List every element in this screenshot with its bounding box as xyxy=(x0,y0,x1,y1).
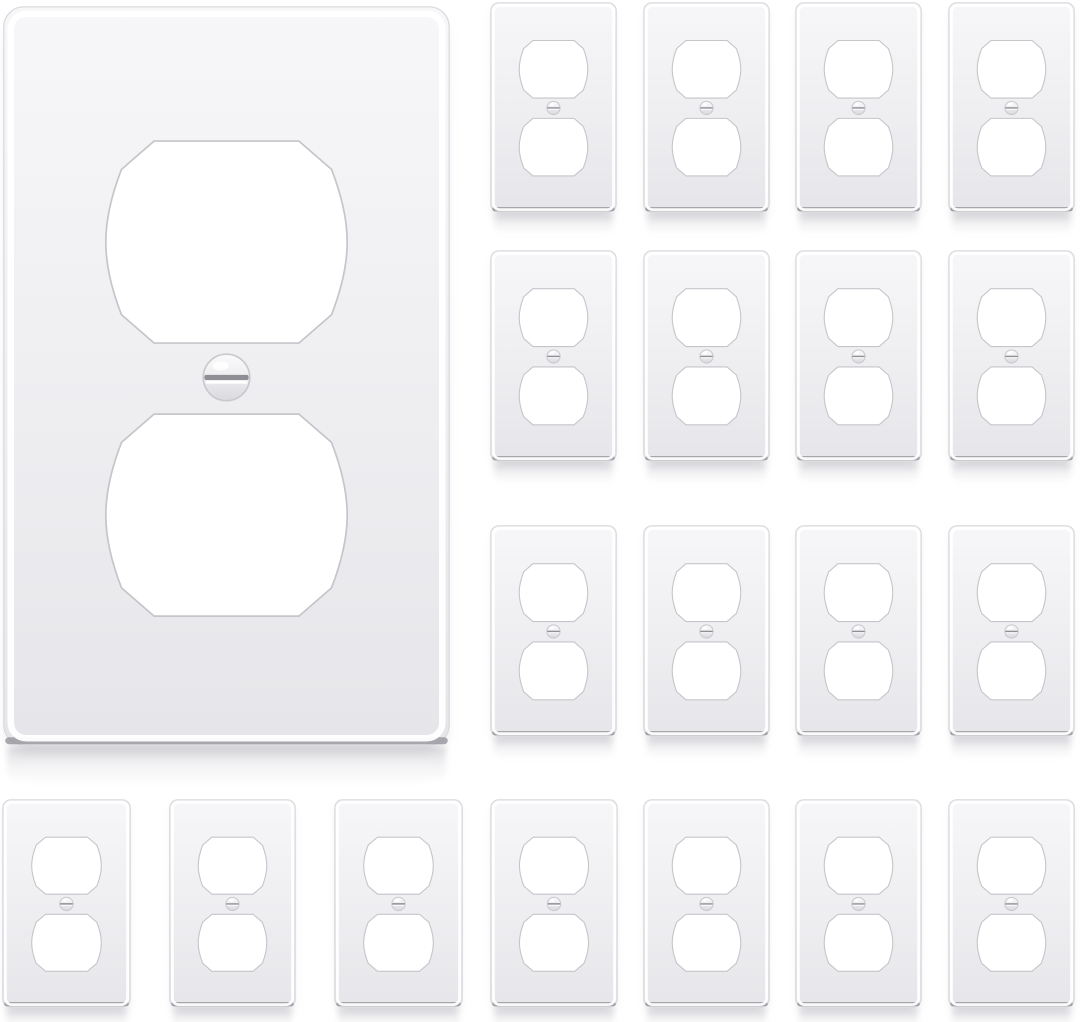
outlet-cutout-bottom xyxy=(106,414,347,616)
screw-highlight xyxy=(1008,627,1012,630)
wall-plate-graphic xyxy=(643,525,770,737)
plate-reflection xyxy=(494,738,613,762)
wall-plate-graphic xyxy=(490,525,617,737)
screw xyxy=(700,897,713,910)
screw xyxy=(852,350,865,363)
wall-plate-graphic xyxy=(643,250,770,462)
plate-reflection xyxy=(952,1009,1071,1022)
outlet-cutout-top xyxy=(824,41,893,99)
screw-slot xyxy=(700,107,713,108)
screw xyxy=(547,897,560,910)
plate-reflection xyxy=(173,1009,292,1022)
wall-plate-graphic xyxy=(948,525,1075,737)
outlet-cutout-top xyxy=(519,564,588,622)
screw-slot xyxy=(204,375,248,380)
screw-slot xyxy=(852,903,865,904)
screw-slot xyxy=(60,903,73,904)
plate-reflection xyxy=(494,1009,614,1022)
screw xyxy=(1005,101,1018,114)
outlet-cutout-top xyxy=(824,837,893,894)
outlet-cutout-bottom xyxy=(672,367,741,425)
wall-plate-small xyxy=(795,2,922,213)
outlet-cutout-bottom xyxy=(824,914,893,971)
plate-reflection xyxy=(799,463,918,487)
plate-reflection xyxy=(647,1009,766,1022)
screw-highlight xyxy=(703,627,707,630)
wall-plate-small xyxy=(795,250,922,462)
wall-plate-small xyxy=(643,799,770,1008)
outlet-cutout-bottom xyxy=(32,914,102,971)
outlet-cutout-top xyxy=(32,837,102,894)
screw-slot xyxy=(392,903,405,904)
outlet-cutout-top xyxy=(977,289,1046,347)
plate-reflection xyxy=(799,1009,918,1022)
wall-plate-small xyxy=(490,250,617,462)
wall-plate-small xyxy=(2,799,131,1008)
screw xyxy=(392,897,405,910)
screw-highlight xyxy=(703,352,707,355)
wall-plate-graphic xyxy=(795,525,922,737)
screw-slot-highlight xyxy=(1006,109,1018,110)
outlet-cutout-bottom xyxy=(977,118,1046,176)
screw-highlight xyxy=(63,899,68,902)
screw-slot xyxy=(700,903,713,904)
outlet-cutout-top xyxy=(672,41,741,99)
plate-reflection xyxy=(647,214,766,238)
plate-reflection xyxy=(338,1009,459,1022)
wall-plate-graphic xyxy=(490,799,618,1008)
screw-slot-highlight xyxy=(548,357,560,358)
wall-plate-graphic xyxy=(948,799,1075,1008)
screw-highlight xyxy=(395,899,400,902)
screw xyxy=(547,101,560,114)
screw xyxy=(700,625,713,638)
screw-highlight xyxy=(855,352,859,355)
outlet-cutout-top xyxy=(106,141,347,343)
screw xyxy=(1005,625,1018,638)
wall-plate-small xyxy=(948,525,1075,737)
screw-slot-highlight xyxy=(701,905,713,906)
screw-slot xyxy=(547,631,560,632)
screw-slot xyxy=(547,107,560,108)
screw-highlight xyxy=(213,361,229,370)
plate-reflection xyxy=(952,463,1071,487)
wall-plate-small xyxy=(948,2,1075,213)
wall-plate-graphic xyxy=(490,2,617,213)
outlet-cutout-bottom xyxy=(672,642,741,700)
product-image-canvas xyxy=(0,0,1080,1022)
wall-plate-graphic xyxy=(334,799,463,1008)
wall-plate-graphic xyxy=(3,6,450,746)
outlet-cutout-bottom xyxy=(519,642,588,700)
screw-highlight xyxy=(229,899,233,902)
screw-slot xyxy=(547,356,560,357)
screw-slot-highlight xyxy=(548,109,560,110)
wall-plate-graphic xyxy=(169,799,296,1008)
outlet-cutout-top xyxy=(198,837,267,894)
outlet-cutout-bottom xyxy=(519,367,588,425)
plate-reflection xyxy=(799,214,918,238)
wall-plate-small xyxy=(643,525,770,737)
wall-plate-small xyxy=(795,799,922,1008)
screw-highlight xyxy=(855,899,859,902)
outlet-cutout-bottom xyxy=(977,642,1046,700)
screw-highlight xyxy=(1008,352,1012,355)
screw-slot-highlight xyxy=(548,905,560,906)
outlet-cutout-bottom xyxy=(824,642,893,700)
screw xyxy=(700,101,713,114)
screw-highlight xyxy=(1008,103,1012,106)
screw-slot-highlight xyxy=(206,381,248,384)
wall-plate-small xyxy=(948,250,1075,462)
outlet-cutout-bottom xyxy=(672,118,741,176)
screw-slot xyxy=(852,107,865,108)
wall-plate-graphic xyxy=(795,799,922,1008)
wall-plate-graphic xyxy=(490,250,617,462)
outlet-cutout-bottom xyxy=(824,367,893,425)
wall-plate-graphic xyxy=(795,2,922,213)
wall-plate-graphic xyxy=(948,250,1075,462)
screw-slot-highlight xyxy=(548,632,560,633)
screw-slot-highlight xyxy=(853,357,865,358)
outlet-cutout-top xyxy=(519,837,588,894)
plate-reflection xyxy=(799,738,918,762)
screw xyxy=(852,625,865,638)
screw-slot-highlight xyxy=(392,905,404,906)
outlet-cutout-top xyxy=(364,837,434,894)
wall-plate-small xyxy=(643,2,770,213)
screw-highlight xyxy=(855,627,859,630)
outlet-cutout-top xyxy=(519,289,588,347)
outlet-cutout-bottom xyxy=(977,367,1046,425)
screw xyxy=(203,354,249,400)
outlet-cutout-bottom xyxy=(977,914,1046,971)
outlet-cutout-top xyxy=(977,837,1046,894)
outlet-cutout-bottom xyxy=(519,118,588,176)
outlet-cutout-bottom xyxy=(824,118,893,176)
outlet-cutout-top xyxy=(824,564,893,622)
screw-slot xyxy=(852,356,865,357)
plate-reflection xyxy=(6,1009,127,1022)
screw-slot-highlight xyxy=(701,109,713,110)
wall-plate-small xyxy=(334,799,463,1008)
wall-plate-large xyxy=(3,6,450,746)
screw-slot xyxy=(852,631,865,632)
screw-slot-highlight xyxy=(227,905,239,906)
outlet-cutout-bottom xyxy=(519,914,588,971)
screw xyxy=(1005,350,1018,363)
outlet-cutout-top xyxy=(672,289,741,347)
screw-slot-highlight xyxy=(1006,632,1018,633)
screw xyxy=(700,350,713,363)
outlet-cutout-top xyxy=(824,289,893,347)
screw-slot xyxy=(700,356,713,357)
wall-plate-graphic xyxy=(2,799,131,1008)
wall-plate-small xyxy=(169,799,296,1008)
screw-highlight xyxy=(550,899,555,902)
screw-highlight xyxy=(1008,899,1012,902)
screw-slot-highlight xyxy=(60,905,72,906)
screw-highlight xyxy=(550,103,554,106)
screw-slot-highlight xyxy=(1006,357,1018,358)
screw-slot xyxy=(1005,631,1018,632)
screw-highlight xyxy=(550,627,554,630)
screw-highlight xyxy=(550,352,554,355)
plate-reflection xyxy=(494,463,613,487)
wall-plate-small xyxy=(490,525,617,737)
outlet-cutout-top xyxy=(977,41,1046,99)
screw xyxy=(60,897,73,910)
outlet-cutout-top xyxy=(977,564,1046,622)
outlet-cutout-bottom xyxy=(364,914,434,971)
screw-slot-highlight xyxy=(701,357,713,358)
wall-plate-small xyxy=(490,799,618,1008)
screw-slot-highlight xyxy=(1006,905,1018,906)
screw-highlight xyxy=(703,103,707,106)
wall-plate-graphic xyxy=(948,2,1075,213)
screw-slot-highlight xyxy=(853,109,865,110)
screw xyxy=(226,897,239,910)
wall-plate-small xyxy=(643,250,770,462)
plate-reflection xyxy=(647,463,766,487)
screw-slot xyxy=(1005,107,1018,108)
screw-slot-highlight xyxy=(853,905,865,906)
plate-reflection xyxy=(952,214,1071,238)
wall-plate-graphic xyxy=(643,2,770,213)
screw xyxy=(547,625,560,638)
plate-reflection xyxy=(494,214,613,238)
screw-slot-highlight xyxy=(853,632,865,633)
screw-slot xyxy=(700,631,713,632)
wall-plate-small xyxy=(948,799,1075,1008)
outlet-cutout-top xyxy=(672,837,741,894)
plate-reflection xyxy=(952,738,1071,762)
screw-slot xyxy=(1005,356,1018,357)
screw xyxy=(547,350,560,363)
outlet-cutout-bottom xyxy=(198,914,267,971)
screw-highlight xyxy=(855,103,859,106)
screw-slot xyxy=(226,903,239,904)
plate-reflection xyxy=(7,747,446,791)
screw-highlight xyxy=(703,899,707,902)
outlet-cutout-top xyxy=(672,564,741,622)
wall-plate-graphic xyxy=(643,799,770,1008)
wall-plate-small xyxy=(795,525,922,737)
screw-slot xyxy=(1005,903,1018,904)
screw-slot-highlight xyxy=(701,632,713,633)
screw-slot xyxy=(548,903,561,904)
wall-plate-graphic xyxy=(795,250,922,462)
outlet-cutout-bottom xyxy=(672,914,741,971)
wall-plate-small xyxy=(490,2,617,213)
screw xyxy=(852,101,865,114)
screw xyxy=(1005,897,1018,910)
plate-reflection xyxy=(647,738,766,762)
screw xyxy=(852,897,865,910)
outlet-cutout-top xyxy=(519,41,588,99)
